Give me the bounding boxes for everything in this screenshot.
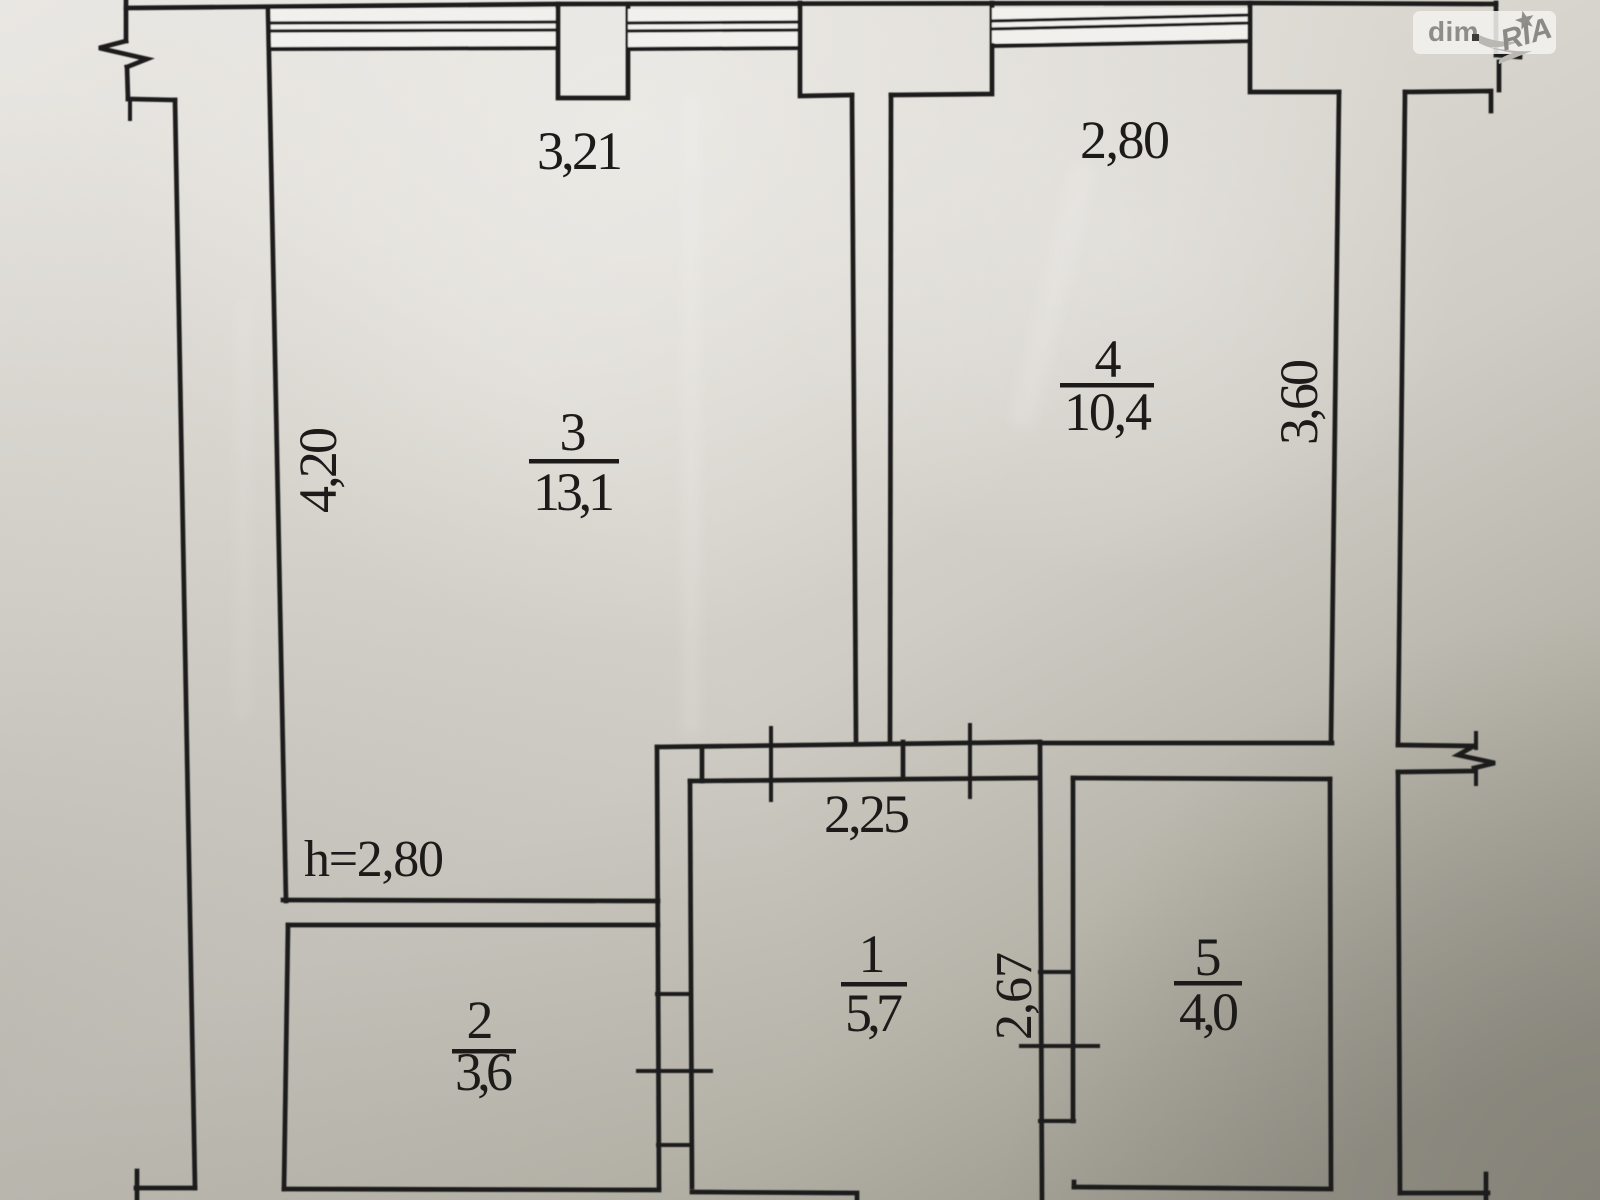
svg-text:5: 5	[1195, 927, 1222, 987]
svg-text:3,21: 3,21	[537, 121, 623, 181]
svg-text:5,7: 5,7	[845, 983, 903, 1043]
svg-text:13,1: 13,1	[533, 462, 615, 522]
svg-text:2,80: 2,80	[1080, 110, 1170, 170]
svg-text:dim: dim	[1428, 16, 1479, 47]
svg-text:2: 2	[467, 990, 494, 1050]
svg-text:1: 1	[859, 924, 886, 984]
svg-text:3: 3	[560, 402, 587, 462]
svg-text:10,4: 10,4	[1064, 382, 1152, 442]
svg-text:2,25: 2,25	[824, 784, 910, 844]
svg-text:4,20: 4,20	[288, 427, 348, 513]
svg-text:4,0: 4,0	[1179, 982, 1239, 1042]
svg-text:h=2,80: h=2,80	[304, 831, 444, 888]
svg-text:4: 4	[1095, 329, 1122, 389]
svg-text:3,60: 3,60	[1269, 359, 1329, 445]
svg-text:2,67: 2,67	[986, 952, 1043, 1040]
svg-text:3,6: 3,6	[455, 1042, 513, 1102]
